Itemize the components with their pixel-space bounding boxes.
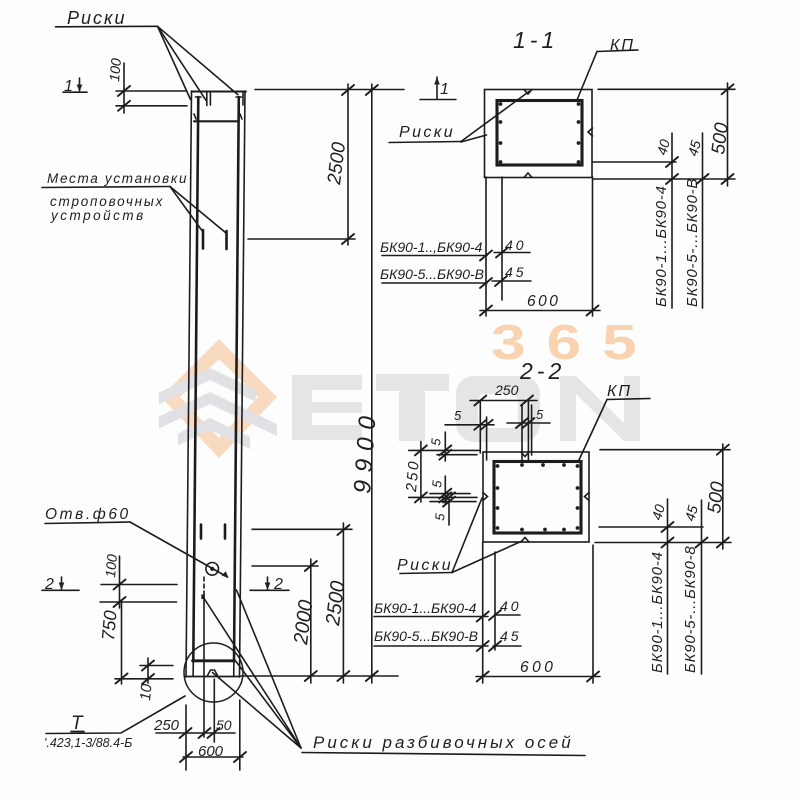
svg-text:600: 600 bbox=[527, 293, 560, 310]
svg-text:750: 750 bbox=[98, 610, 121, 642]
svg-text:БК90-5...БК90-В: БК90-5...БК90-В bbox=[380, 266, 484, 282]
svg-text:5: 5 bbox=[428, 437, 444, 446]
svg-text:365: 365 bbox=[491, 314, 658, 369]
svg-text:устройств: устройств bbox=[50, 208, 146, 223]
svg-text:строповочных: строповочных bbox=[50, 194, 164, 209]
svg-text:9900: 9900 bbox=[349, 407, 382, 494]
svg-text:БК90-1...БК90-4: БК90-1...БК90-4 bbox=[374, 600, 477, 616]
svg-text:БК90-5-...БК90-В: БК90-5-...БК90-В bbox=[684, 178, 701, 307]
svg-text:1: 1 bbox=[440, 81, 449, 98]
svg-text:45: 45 bbox=[684, 138, 704, 157]
svg-text:БК90-1...БК90-4: БК90-1...БК90-4 bbox=[649, 551, 666, 673]
svg-text:500: 500 bbox=[704, 480, 729, 514]
svg-text:45: 45 bbox=[681, 503, 701, 522]
svg-text:Риски разбивочных осей: Риски разбивочных осей bbox=[313, 733, 574, 752]
svg-text:100: 100 bbox=[102, 553, 120, 578]
svg-text:40: 40 bbox=[505, 237, 527, 253]
svg-text:45: 45 bbox=[505, 264, 527, 280]
svg-text:45: 45 bbox=[500, 628, 522, 644]
svg-text:Места установки: Места установки bbox=[47, 171, 188, 186]
svg-text:БК90-1...БК90-4: БК90-1...БК90-4 bbox=[653, 185, 670, 307]
svg-text:БК90-1..,БК90-4: БК90-1..,БК90-4 bbox=[380, 239, 483, 255]
svg-text:2500: 2500 bbox=[322, 580, 349, 628]
svg-text:40: 40 bbox=[648, 502, 668, 521]
svg-text:5: 5 bbox=[454, 408, 462, 423]
svg-text:2000: 2000 bbox=[290, 599, 317, 647]
svg-text:Отв.ф60: Отв.ф60 bbox=[45, 506, 131, 523]
svg-text:БК90-5-...БК90-8: БК90-5-...БК90-8 bbox=[682, 545, 699, 673]
svg-text:40: 40 bbox=[653, 137, 673, 156]
svg-text:100: 100 bbox=[106, 57, 124, 82]
svg-text:250: 250 bbox=[153, 717, 180, 734]
svg-text:40: 40 bbox=[500, 598, 522, 614]
svg-text:10: 10 bbox=[137, 683, 155, 702]
svg-text:5: 5 bbox=[536, 407, 544, 422]
svg-text:'.423,1-3/88.4-Б: '.423,1-3/88.4-Б bbox=[44, 736, 132, 750]
svg-text:600: 600 bbox=[520, 659, 556, 676]
svg-text:1-1: 1-1 bbox=[513, 27, 558, 53]
svg-text:250: 250 bbox=[403, 458, 423, 493]
svg-text:Риски: Риски bbox=[399, 124, 455, 141]
svg-text:КП: КП bbox=[607, 383, 632, 400]
svg-text:2-2: 2-2 bbox=[519, 358, 565, 384]
svg-text:БК90-5...БК90-В: БК90-5...БК90-В bbox=[374, 628, 478, 644]
svg-text:Риски: Риски bbox=[67, 8, 127, 28]
svg-text:2500: 2500 bbox=[324, 141, 350, 187]
svg-text:5: 5 bbox=[432, 512, 448, 521]
svg-text:5: 5 bbox=[429, 479, 445, 488]
svg-text:250: 250 bbox=[494, 382, 519, 398]
svg-text:600: 600 bbox=[198, 743, 224, 760]
svg-text:500: 500 bbox=[708, 121, 733, 155]
svg-text:Риски: Риски bbox=[397, 557, 453, 574]
svg-text:50: 50 bbox=[216, 717, 232, 733]
